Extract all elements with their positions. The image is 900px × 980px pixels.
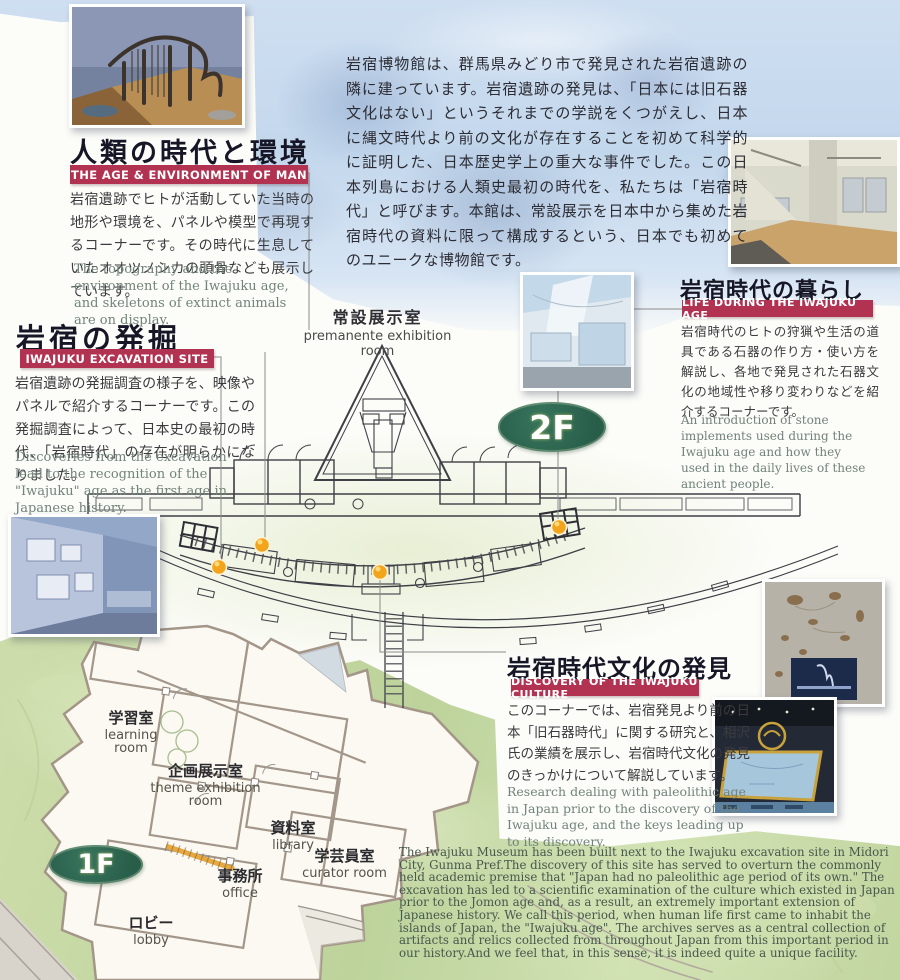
floor2-badge-text: 2F [529, 408, 575, 447]
intro-paragraph: 岩宿博物館は、群馬県みどり市で発見された岩宿遺跡の隣に建っています。岩宿遺跡の発… [346, 52, 748, 273]
room-label-learning: 学習室 learning room [88, 711, 174, 756]
room-office-ja: 事務所 [205, 869, 275, 885]
room-library-ja: 資料室 [258, 821, 328, 837]
section-discovery-body-en: Research dealing with paleolithic age in… [507, 784, 752, 850]
photo-stone-implements-wall [762, 579, 885, 707]
room-curator-en: curator room [302, 867, 387, 881]
room-label-curator: 学芸員室 curator room [302, 849, 387, 880]
section-life-banner: LIFE DURING THE IWAJUKU AGE [682, 300, 873, 317]
floor1-badge-text: 1F [77, 849, 114, 880]
room-office-en: office [205, 887, 275, 901]
room-lobby-en: lobby [116, 934, 186, 948]
room-theme-ja: 企画展示室 [143, 764, 268, 780]
room-learning-ja: 学習室 [88, 711, 174, 727]
footer-paragraph: The Iwajuku Museum has been built next t… [399, 846, 899, 959]
section-discovery-body-ja: このコーナーでは、岩宿発見より前の日本「旧石器時代」に関する研究と、相沢氏の業績… [507, 701, 750, 787]
permanent-exhibition-room-ja: 常設展示室 [285, 304, 470, 328]
photo-permanent-exhibit-room [520, 272, 634, 391]
section-life-body-ja: 岩宿時代のヒトの狩猟や生活の道具である石器の作り方・使い方を解説し、各地で発見さ… [681, 322, 879, 422]
room-learning-en: learning room [88, 729, 174, 756]
room-theme-en: theme exhibition room [143, 782, 268, 809]
brochure-page: 岩宿博物館は、群馬県みどり市で発見された岩宿遺跡の隣に建っています。岩宿遺跡の発… [0, 0, 900, 980]
photo-exhibition-hall [728, 137, 900, 267]
section-life-body-en: An introduction of stone implements used… [681, 412, 873, 492]
room-lobby-ja: ロビー [116, 916, 186, 932]
room-label-theme-exhibition: 企画展示室 theme exhibition room [143, 764, 268, 809]
room-label-lobby: ロビー lobby [116, 916, 186, 947]
floor1-badge: 1F [49, 845, 143, 884]
photo-excavation-corridor [8, 514, 160, 637]
room-label-office: 事務所 office [205, 869, 275, 900]
section-excavation-body-en: Discoveries from the excavation lead to … [15, 449, 255, 517]
permanent-exhibition-room-label: 常設展示室 premanente exhibition room [285, 304, 470, 359]
section-excavation-banner: IWAJUKU EXCAVATION SITE [20, 349, 214, 368]
photo-mammoth-skeleton [69, 4, 245, 128]
section-age-banner: THE AGE & ENVIRONMENT OF MAN [70, 165, 308, 184]
floor2-badge: 2F [498, 402, 606, 452]
permanent-exhibition-room-en: premanente exhibition room [285, 329, 470, 359]
section-discovery-banner: DISCOVERY OF THE IWAJUKU CULTURE [511, 679, 699, 696]
room-curator-ja: 学芸員室 [302, 849, 387, 865]
